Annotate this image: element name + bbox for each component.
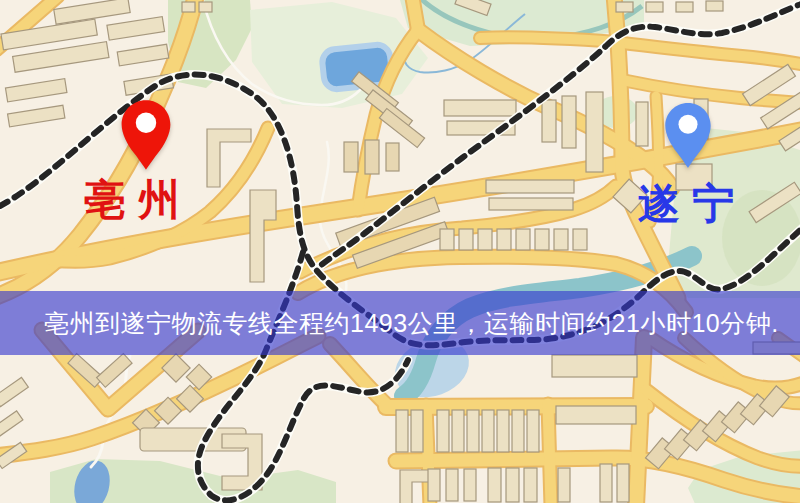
origin-pin-shape <box>122 100 171 170</box>
destination-label: 遂宁 <box>638 176 746 232</box>
map-graphics <box>0 0 800 503</box>
route-info-text: 亳州到遂宁物流专线全程约1493公里，运输时间约21小时10分钟. <box>0 291 779 355</box>
destination-pin-shape <box>665 103 710 168</box>
map-canvas[interactable]: 亳州到遂宁物流专线全程约1493公里，运输时间约21小时10分钟. 亳州 遂宁 <box>0 0 800 503</box>
destination-pin-hole <box>678 115 697 134</box>
route-info-banner: 亳州到遂宁物流专线全程约1493公里，运输时间约21小时10分钟. <box>0 291 800 355</box>
origin-label: 亳州 <box>84 172 192 228</box>
destination-pin[interactable] <box>664 102 712 169</box>
origin-pin-hole <box>136 113 156 133</box>
origin-pin[interactable] <box>120 99 172 171</box>
